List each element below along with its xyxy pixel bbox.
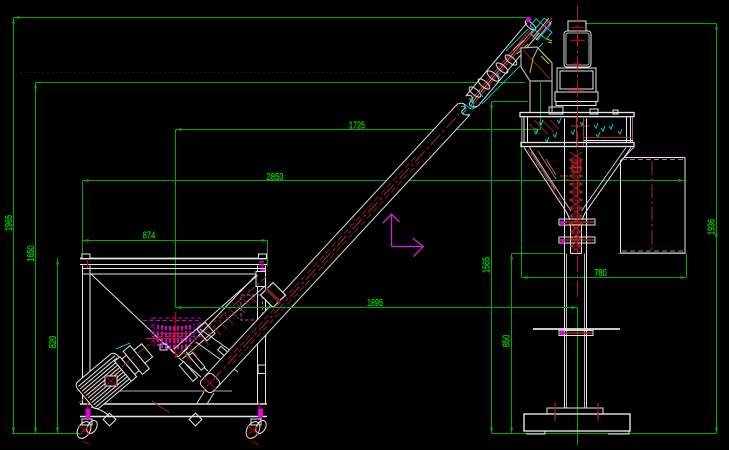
svg-text:820: 820 <box>48 335 59 348</box>
svg-text:1936: 1936 <box>707 219 718 235</box>
svg-text:780: 780 <box>594 268 607 279</box>
svg-text:850: 850 <box>502 334 513 347</box>
svg-text:1725: 1725 <box>349 121 365 132</box>
svg-text:1965: 1965 <box>4 215 15 231</box>
svg-text:1650: 1650 <box>26 245 37 261</box>
svg-text:874: 874 <box>143 231 156 242</box>
svg-text:1565: 1565 <box>482 257 493 273</box>
svg-text:2850: 2850 <box>267 172 284 183</box>
